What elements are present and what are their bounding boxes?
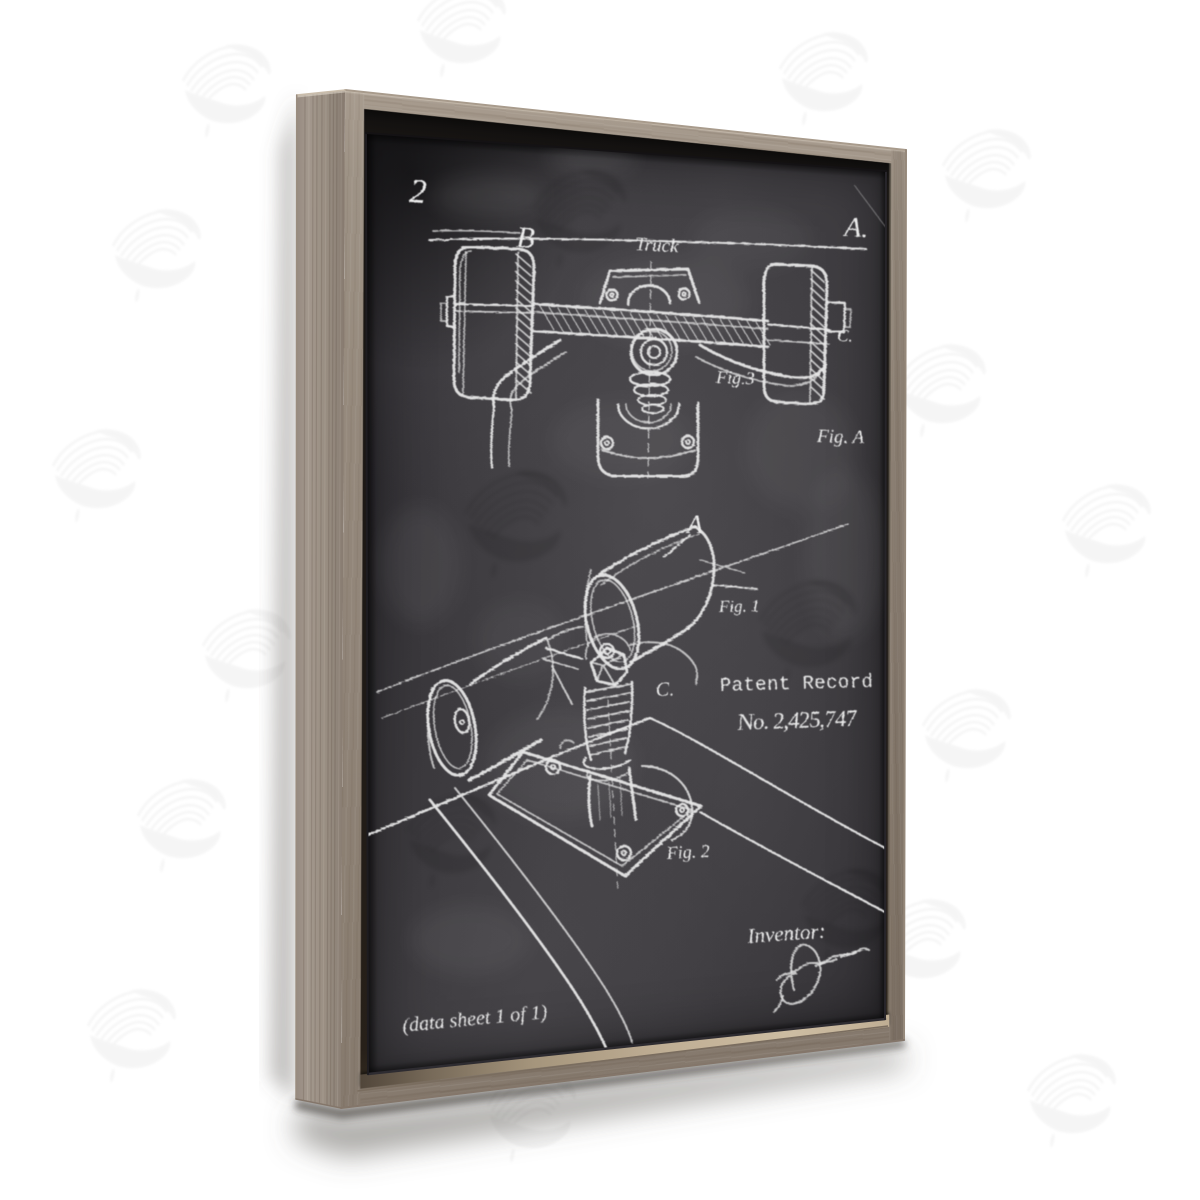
svg-text:Fig. 1: Fig. 1 — [718, 596, 760, 616]
svg-text:Patent Record: Patent Record — [720, 671, 874, 697]
svg-text:Inventor:: Inventor: — [746, 919, 827, 948]
svg-text:(data sheet 1 of 1): (data sheet 1 of 1) — [401, 1001, 548, 1037]
svg-text:Truck: Truck — [635, 234, 680, 257]
svg-text:Fig. A: Fig. A — [816, 426, 865, 448]
svg-text:No. 2,425,747: No. 2,425,747 — [737, 705, 858, 735]
svg-text:A.: A. — [842, 212, 870, 244]
svg-text:B: B — [516, 221, 536, 255]
svg-text:C.: C. — [655, 678, 674, 701]
svg-text:A: A — [685, 510, 703, 539]
svg-text:C.: C. — [837, 326, 853, 346]
svg-text:Fig.3: Fig.3 — [715, 367, 755, 388]
svg-text:2: 2 — [409, 173, 428, 211]
svg-text:Fig. 2: Fig. 2 — [665, 841, 710, 863]
